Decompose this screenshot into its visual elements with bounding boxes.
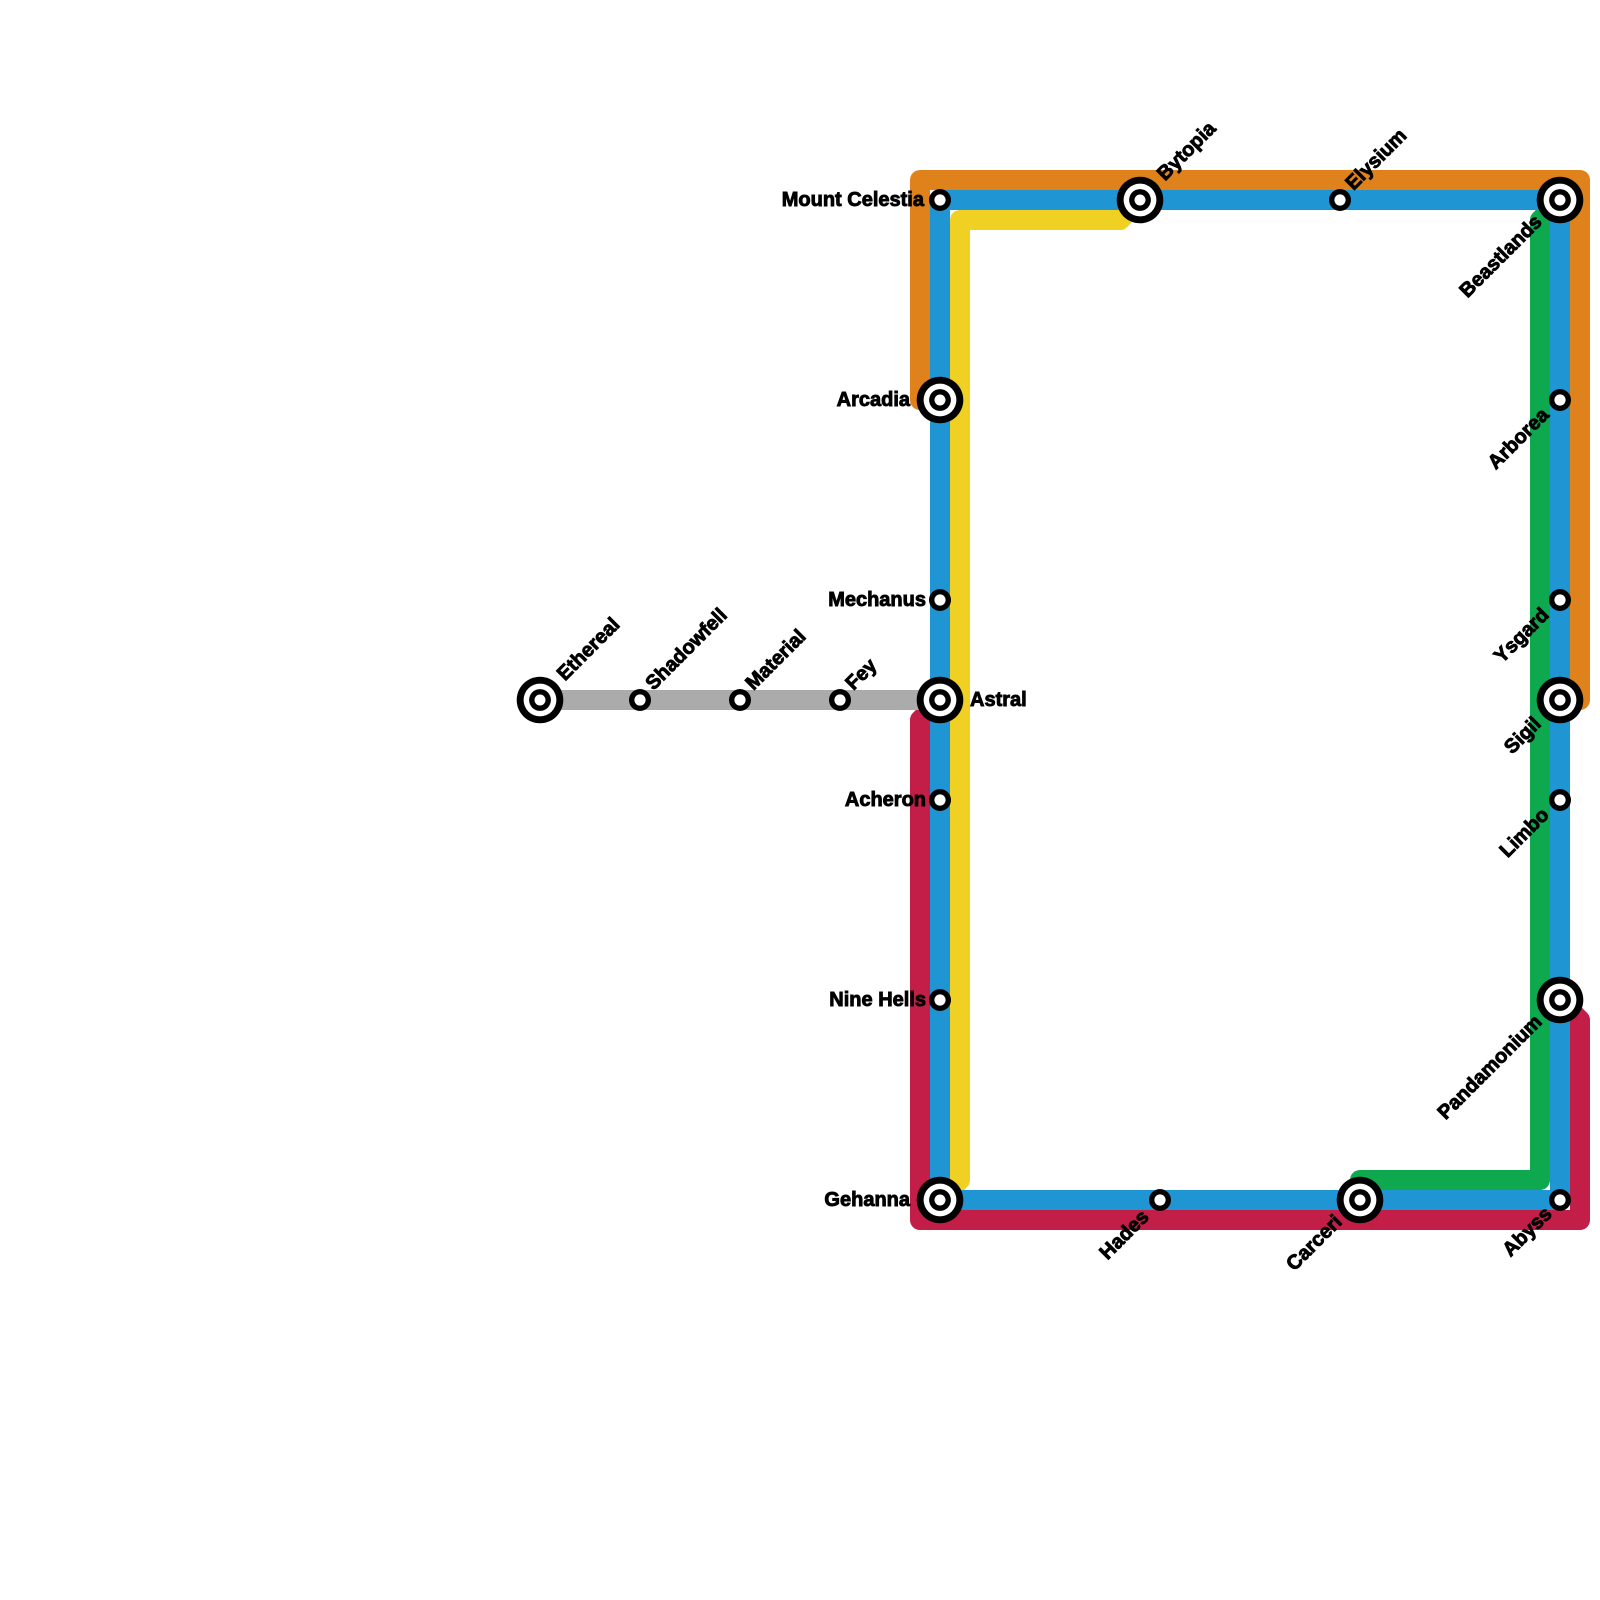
svg-text:Arcadia: Arcadia: [837, 389, 911, 411]
svg-text:Mechanus: Mechanus: [828, 589, 926, 611]
svg-text:Mount Celestia: Mount Celestia: [782, 189, 925, 211]
svg-text:Astral: Astral: [970, 689, 1027, 711]
svg-text:Nine Hells: Nine Hells: [829, 989, 926, 1011]
svg-text:Acheron: Acheron: [845, 789, 926, 811]
svg-text:Gehanna: Gehanna: [824, 1189, 910, 1211]
